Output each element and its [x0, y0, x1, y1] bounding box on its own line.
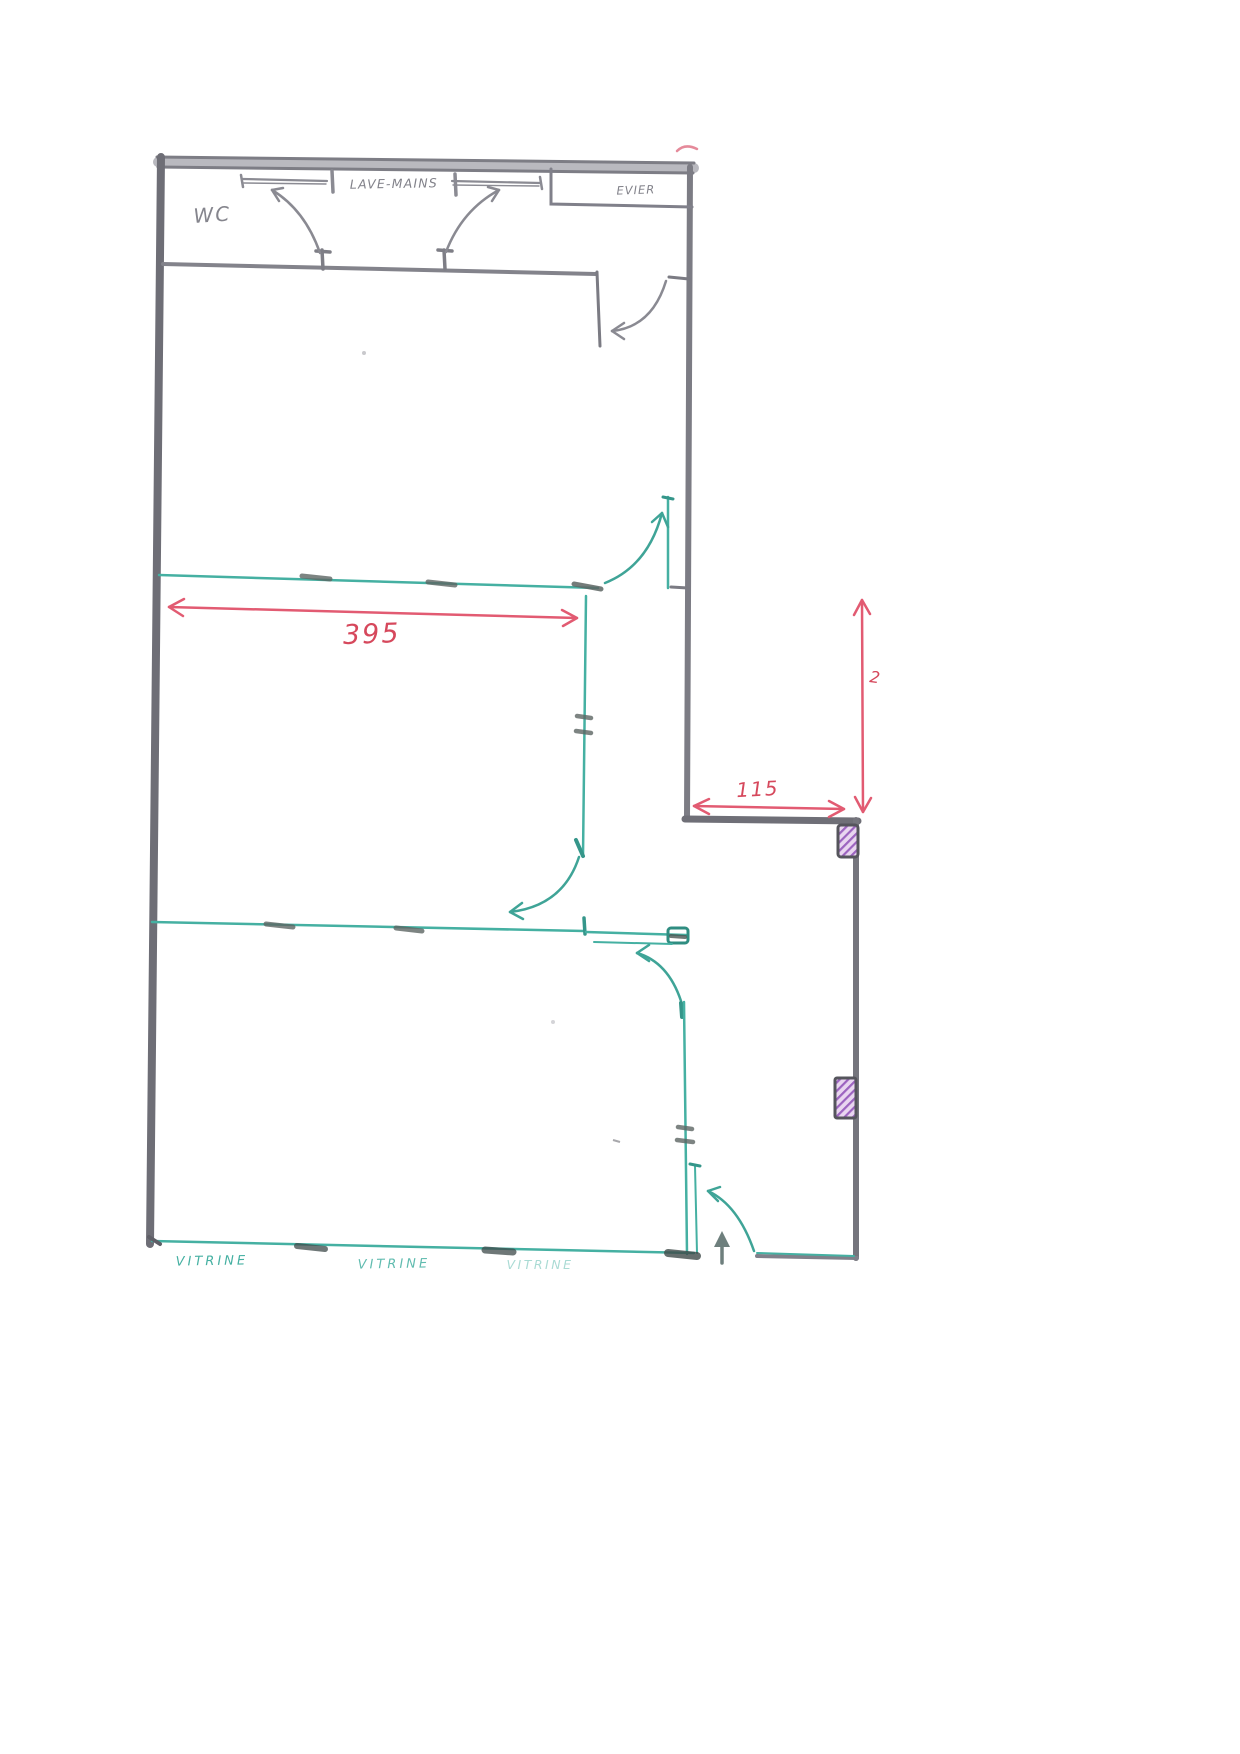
counter-line-right — [452, 181, 540, 183]
scan-speck-3 — [551, 1020, 555, 1024]
wall-fixture-lower — [835, 1078, 856, 1118]
scanned-floor-plan-page: WC LAVE-MAINS EVIER 395 115 2 — [0, 0, 1240, 1754]
entry-door-leaf — [695, 1166, 697, 1253]
vertical-dim-line — [862, 600, 863, 812]
storefront-mullion-2 — [485, 1250, 513, 1252]
vitrine-label-middle: VITRINE — [358, 1256, 431, 1272]
scan-speck-1 — [362, 351, 366, 355]
vestibule-door-arrowhead-icon — [637, 945, 649, 961]
dim-395-value: 395 — [342, 618, 401, 651]
dim-115-line — [694, 806, 844, 809]
teal-corridor-wall-vertical — [583, 596, 586, 856]
dim-395-line — [169, 607, 577, 618]
vestibule-door-swing-arc — [637, 953, 681, 1001]
left-wall — [150, 157, 161, 1244]
entry-direction-arrowhead-icon — [714, 1231, 730, 1247]
evier-label: EVIER — [616, 182, 655, 197]
scan-speck-2 — [613, 1140, 620, 1142]
lower-partition-line — [152, 922, 584, 931]
step-wall — [685, 819, 858, 821]
wc-door-swing-arc-right — [446, 190, 499, 252]
wc-corridor-door-swing-arc — [612, 281, 666, 331]
wall-fixture-upper — [838, 825, 858, 857]
upper-door-wall-stub — [671, 587, 688, 588]
upper-partition-tick-1 — [302, 576, 330, 579]
right-step-dimensions — [694, 600, 871, 817]
wc-door-hinge-tick-right — [438, 250, 452, 269]
vitrine-label-right: VITRINE — [507, 1257, 574, 1272]
counter-line-left-2 — [244, 183, 326, 184]
lave-mains-label: LAVE-MAINS — [350, 175, 438, 192]
storefront-glass-line — [152, 1241, 694, 1253]
wc-corridor-door-leaf — [597, 272, 600, 346]
upper-partition-line — [159, 575, 598, 588]
sliding-leaf-line — [594, 942, 672, 944]
counter-line-right-2 — [453, 185, 539, 186]
wc-bottom-wall — [163, 264, 596, 274]
counter-bracket-left — [332, 171, 333, 192]
wc-room-label: WC — [193, 201, 232, 228]
counter-end-tick-left — [241, 175, 243, 187]
lower-partition-tick-2 — [396, 928, 422, 931]
counter-bracket-right — [455, 174, 456, 195]
upper-partition — [159, 497, 688, 856]
dim-115-value: 115 — [736, 776, 780, 802]
entry-door-leaf-cap — [690, 1164, 700, 1166]
storefront-mullion-1 — [297, 1246, 325, 1249]
entry-door-swing-arc — [708, 1191, 754, 1251]
right-wall-upper — [687, 167, 690, 819]
outer-walls — [150, 157, 858, 1258]
lower-partition — [152, 857, 688, 1001]
pink-check-mark — [677, 146, 697, 151]
counter-end-tick-right — [540, 177, 542, 189]
offset-bracket-smudge — [671, 936, 685, 937]
floor-plan-canvas: WC LAVE-MAINS EVIER 395 115 2 — [0, 0, 1240, 1754]
lower-partition-tick-1 — [266, 924, 293, 927]
scan-artifacts — [362, 351, 620, 1142]
vitrine-label-left: VITRINE — [176, 1253, 249, 1269]
counter-line-left — [243, 179, 327, 181]
vertical-dim-note: 2 — [868, 667, 881, 687]
upper-door-swing-arc — [605, 513, 662, 583]
storefront-door-jamb — [668, 1253, 697, 1256]
vestibule-wall-hinge-cap — [681, 1003, 682, 1017]
wc-corridor-wall-stub — [669, 277, 689, 279]
upper-door-leaf-cap — [663, 497, 673, 499]
upper-partition-tick-2 — [428, 582, 455, 585]
vestibule-entry — [677, 1002, 854, 1263]
